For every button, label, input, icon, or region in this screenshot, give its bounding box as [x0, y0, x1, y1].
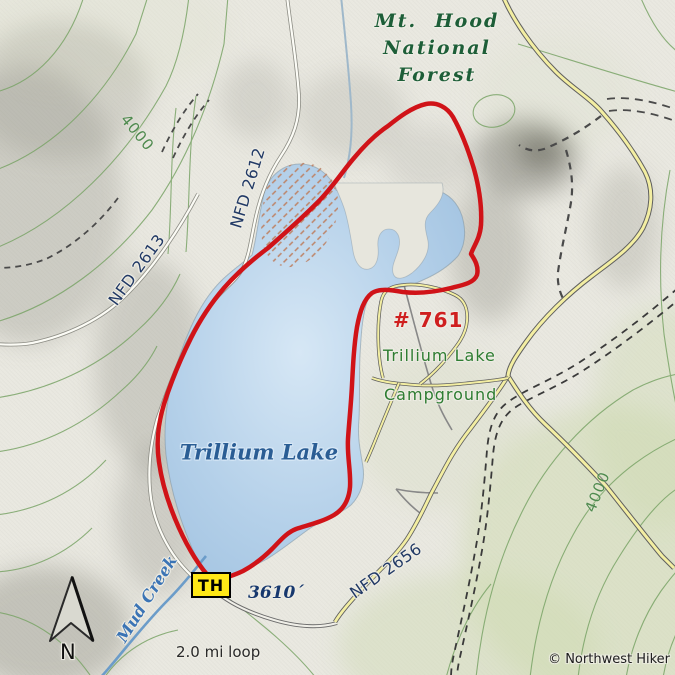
trail-number-label: # 761 [393, 310, 463, 330]
trailhead-elevation-label: 3610´ [248, 585, 304, 602]
campground-label-line1: Trillium Lake [383, 348, 496, 364]
lake-name-label: Trillium Lake [180, 442, 338, 463]
campground-label-line2: Campground [384, 387, 497, 403]
trailhead-label: TH [198, 576, 224, 595]
trillium-lake-trail-map: Mt. Hood National Forest NFD 2612 NFD 26… [0, 0, 675, 675]
copyright-label: © Northwest Hiker [548, 653, 670, 666]
compass-north-label: N [60, 642, 76, 663]
th-box-marker: TH [191, 572, 231, 598]
forest-name-label: Mt. Hood National Forest [352, 8, 522, 89]
loop-distance-label: 2.0 mi loop [176, 645, 260, 660]
forest-name-line2: National [352, 35, 522, 62]
map-graphics [0, 0, 675, 675]
forest-name-line1: Mt. Hood [352, 8, 522, 35]
forest-name-line3: Forest [352, 62, 522, 89]
